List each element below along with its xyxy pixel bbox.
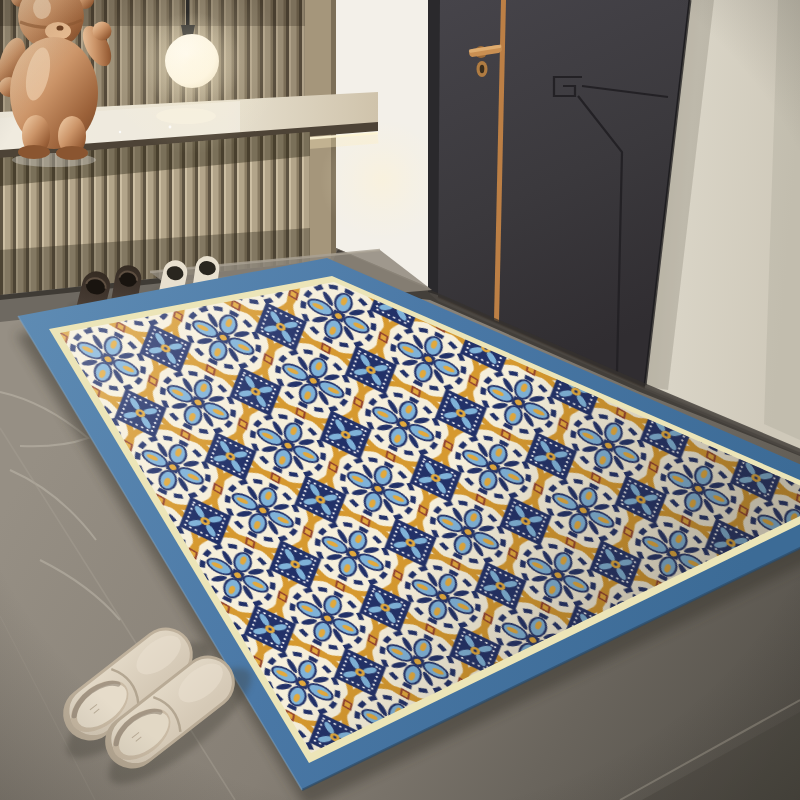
scene-canvas bbox=[0, 0, 800, 800]
entryway-scene bbox=[0, 0, 800, 800]
vignette bbox=[0, 0, 800, 800]
